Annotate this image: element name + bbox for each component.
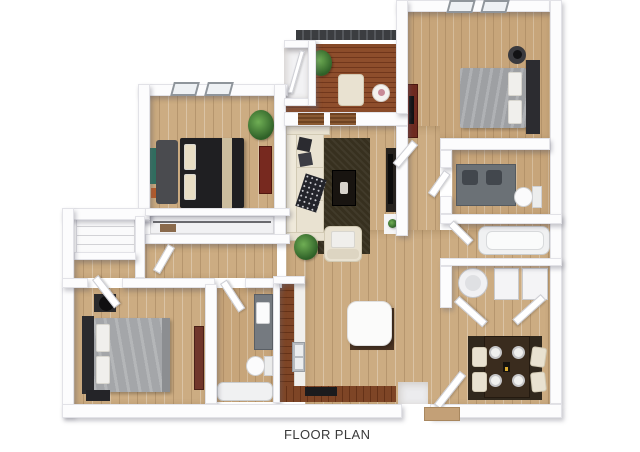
- plate: [489, 374, 502, 387]
- headboard: [82, 316, 94, 394]
- wall-master-bottom: [440, 138, 550, 150]
- vanity-sink: [486, 170, 502, 185]
- closet-rod: [153, 221, 271, 223]
- linen-closet: [76, 216, 135, 254]
- window: [446, 0, 475, 13]
- window: [204, 82, 234, 96]
- toilet-tank: [264, 356, 273, 376]
- bed-pillow: [184, 174, 196, 200]
- sink-basin: [295, 345, 303, 356]
- window: [480, 0, 509, 13]
- plate: [489, 346, 502, 359]
- plate: [512, 346, 525, 359]
- balcony-railing: [296, 30, 406, 40]
- floor-plan-canvas: FLOOR PLAN: [0, 0, 640, 452]
- bathtub-small: [217, 382, 273, 401]
- wall-bed3-right: [205, 284, 217, 404]
- cooktop: [305, 387, 337, 396]
- small-dresser: [86, 390, 110, 401]
- hall-floor-left: [74, 260, 138, 278]
- dining-chair: [472, 372, 487, 392]
- toilet-tank: [532, 186, 542, 208]
- window: [170, 82, 200, 96]
- master-headboard: [526, 60, 540, 134]
- red-mirror: [194, 326, 204, 390]
- vanity-sink: [462, 170, 478, 185]
- entry-alcove-floor: [398, 382, 428, 404]
- island-table-top: [347, 301, 392, 346]
- kitchen-cabinets-bottom: [280, 386, 396, 402]
- wall-linen-bottom: [74, 252, 136, 260]
- wall-bath-bottom: [440, 214, 562, 224]
- bed-pillow: [96, 324, 110, 352]
- wall-bath-left-upper: [440, 150, 452, 168]
- wall-storage-right: [308, 40, 316, 106]
- living-plant: [294, 234, 318, 260]
- shutter-panel: [298, 113, 324, 125]
- plate: [512, 374, 525, 387]
- master-lamp: [513, 50, 522, 59]
- coffee-table-decor: [340, 182, 348, 194]
- bed-pillow: [96, 356, 110, 384]
- shutter-panel: [330, 113, 356, 125]
- bathtub-basin: [486, 231, 544, 250]
- armchair-cushion: [331, 231, 355, 248]
- wall-hall-bottom-1: [62, 278, 88, 288]
- toilet-bowl: [514, 187, 533, 207]
- dining-chair: [530, 346, 548, 368]
- vanity-sink-white: [256, 302, 270, 324]
- sofa-arm: [286, 126, 330, 135]
- dryer: [494, 268, 519, 300]
- wall-closet-bottom: [145, 234, 290, 244]
- wall-outer-left: [62, 208, 74, 416]
- dryer: [522, 268, 548, 300]
- wall-outer-right: [550, 0, 562, 404]
- toilet-bowl: [246, 356, 265, 376]
- wall-bath2-kitchen: [273, 283, 280, 403]
- wall-closet-top: [145, 208, 290, 216]
- wall-laundry-left: [440, 266, 452, 308]
- closet-textile: [160, 224, 176, 232]
- wall-master-left: [396, 0, 408, 114]
- armchair-back: [327, 249, 359, 259]
- palm-plant: [248, 110, 274, 140]
- dining-chair: [472, 347, 487, 367]
- caption: FLOOR PLAN: [284, 427, 370, 442]
- wall-bath-left-lower: [440, 196, 452, 214]
- bed-throw: [222, 138, 232, 208]
- entry-landing: [424, 407, 460, 421]
- bed-pillow: [184, 144, 196, 170]
- master-pillow: [508, 100, 522, 124]
- wall-tub-bottom: [440, 258, 562, 266]
- washer-lid: [465, 275, 481, 291]
- bed-foot-fold: [162, 318, 170, 392]
- wall-hall-bottom-2: [122, 278, 215, 288]
- wall-bedroom-left: [138, 84, 150, 222]
- dining-chair: [530, 371, 547, 392]
- wall-kitchen-top: [273, 276, 305, 284]
- red-desk: [259, 146, 272, 194]
- dresser-tv: [409, 96, 414, 124]
- wall-outer-bottom-left: [62, 404, 402, 418]
- sofa-pillow-dark: [297, 137, 312, 152]
- candle-flame: [505, 367, 508, 371]
- balcony-chair: [338, 74, 364, 106]
- wall-linen-right: [135, 216, 145, 278]
- sofa-pillow-dark: [298, 152, 313, 167]
- table-flowers: [378, 89, 385, 96]
- wall-living-right: [396, 126, 408, 236]
- sink-basin: [295, 358, 303, 369]
- bedroom-bench: [156, 140, 178, 204]
- master-pillow: [508, 72, 522, 96]
